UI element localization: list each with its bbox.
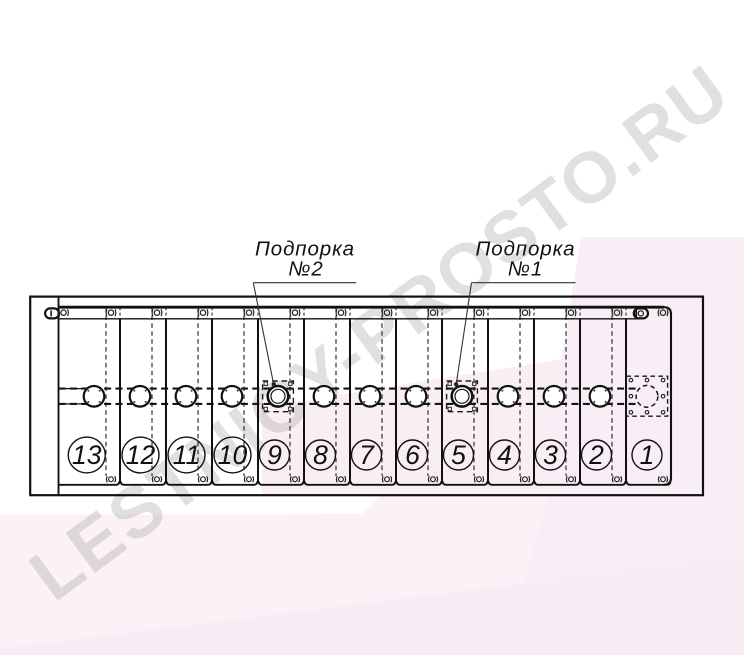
svg-text:5: 5 bbox=[451, 440, 466, 470]
svg-text:6: 6 bbox=[405, 440, 420, 470]
svg-text:9: 9 bbox=[267, 440, 282, 470]
svg-text:8: 8 bbox=[313, 440, 328, 470]
svg-text:№1: №1 bbox=[508, 258, 543, 281]
svg-text:3: 3 bbox=[543, 440, 558, 470]
svg-text:4: 4 bbox=[497, 440, 512, 470]
svg-text:12: 12 bbox=[126, 440, 156, 470]
svg-text:7: 7 bbox=[359, 440, 375, 470]
svg-text:11: 11 bbox=[173, 440, 201, 470]
svg-text:2: 2 bbox=[588, 440, 604, 470]
svg-text:10: 10 bbox=[218, 440, 248, 470]
svg-text:№2: №2 bbox=[288, 258, 323, 281]
svg-text:1: 1 bbox=[640, 440, 655, 470]
svg-text:13: 13 bbox=[72, 440, 102, 470]
